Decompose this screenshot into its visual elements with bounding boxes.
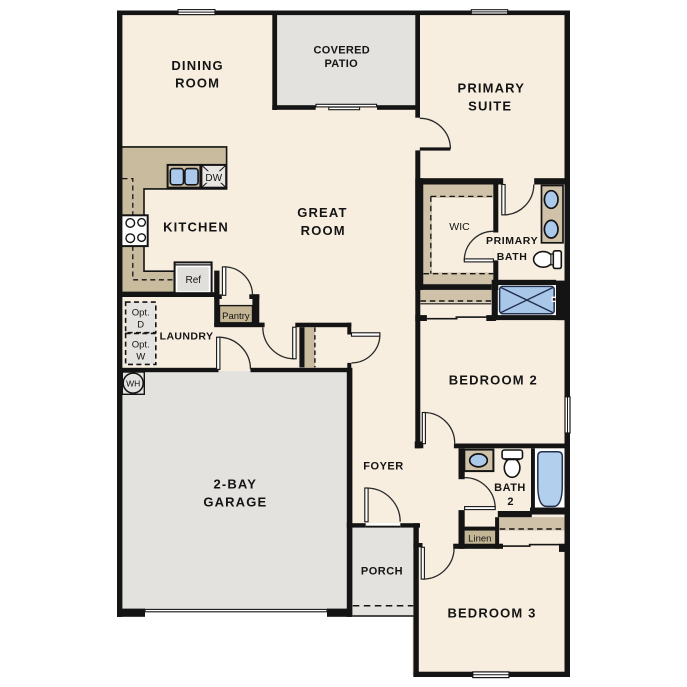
svg-text:ROOM: ROOM bbox=[301, 223, 346, 238]
svg-text:BATH: BATH bbox=[494, 482, 526, 494]
svg-text:DINING: DINING bbox=[171, 58, 223, 73]
svg-text:Pantry: Pantry bbox=[222, 311, 250, 322]
svg-text:GARAGE: GARAGE bbox=[203, 495, 267, 510]
svg-text:DW: DW bbox=[205, 173, 222, 184]
svg-text:WH: WH bbox=[126, 378, 140, 388]
svg-text:COVERED: COVERED bbox=[314, 44, 371, 56]
svg-text:2-BAY: 2-BAY bbox=[214, 477, 258, 492]
svg-text:PORCH: PORCH bbox=[361, 566, 403, 578]
svg-text:PATIO: PATIO bbox=[324, 58, 358, 70]
svg-text:BEDROOM 3: BEDROOM 3 bbox=[447, 605, 536, 620]
svg-text:Linen: Linen bbox=[468, 533, 491, 544]
svg-text:D: D bbox=[137, 320, 144, 331]
svg-text:2: 2 bbox=[507, 496, 514, 508]
svg-text:PRIMARY: PRIMARY bbox=[458, 80, 526, 95]
svg-text:GREAT: GREAT bbox=[297, 205, 347, 220]
svg-text:PRIMARY: PRIMARY bbox=[486, 235, 538, 247]
svg-text:LAUNDRY: LAUNDRY bbox=[160, 330, 214, 342]
svg-text:Opt.: Opt. bbox=[132, 339, 150, 350]
svg-text:BATH: BATH bbox=[497, 251, 528, 263]
svg-text:Ref: Ref bbox=[186, 275, 202, 286]
svg-text:BEDROOM 2: BEDROOM 2 bbox=[449, 373, 538, 388]
svg-text:W: W bbox=[136, 351, 145, 362]
svg-text:KITCHEN: KITCHEN bbox=[163, 220, 229, 235]
svg-text:FOYER: FOYER bbox=[363, 460, 403, 472]
svg-text:ROOM: ROOM bbox=[175, 76, 220, 91]
svg-text:WIC: WIC bbox=[449, 221, 470, 233]
svg-text:SUITE: SUITE bbox=[468, 98, 512, 113]
svg-text:Opt.: Opt. bbox=[132, 308, 150, 319]
